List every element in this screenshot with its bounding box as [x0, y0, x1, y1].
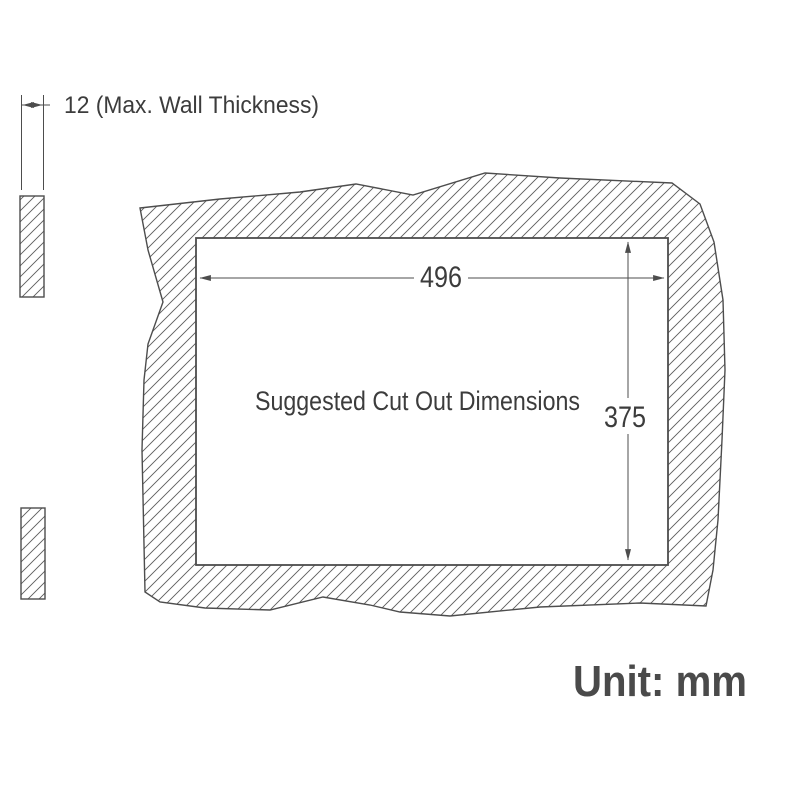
- installation-cutout-diagram: 12 (Max. Wall Thickness) 496 375 Suggest…: [0, 0, 800, 800]
- cutout-width-value: 496: [420, 261, 462, 294]
- cutout-height-value: 375: [604, 401, 646, 434]
- wall-cross-section-upper: [20, 196, 44, 297]
- cutout-label: Suggested Cut Out Dimensions: [255, 386, 580, 416]
- wall-thickness-label: 12 (Max. Wall Thickness): [64, 92, 319, 119]
- diagram-canvas: 12 (Max. Wall Thickness) 496 375 Suggest…: [0, 0, 800, 800]
- unit-label: Unit: mm: [573, 657, 747, 706]
- wall-cross-section-lower: [21, 508, 45, 599]
